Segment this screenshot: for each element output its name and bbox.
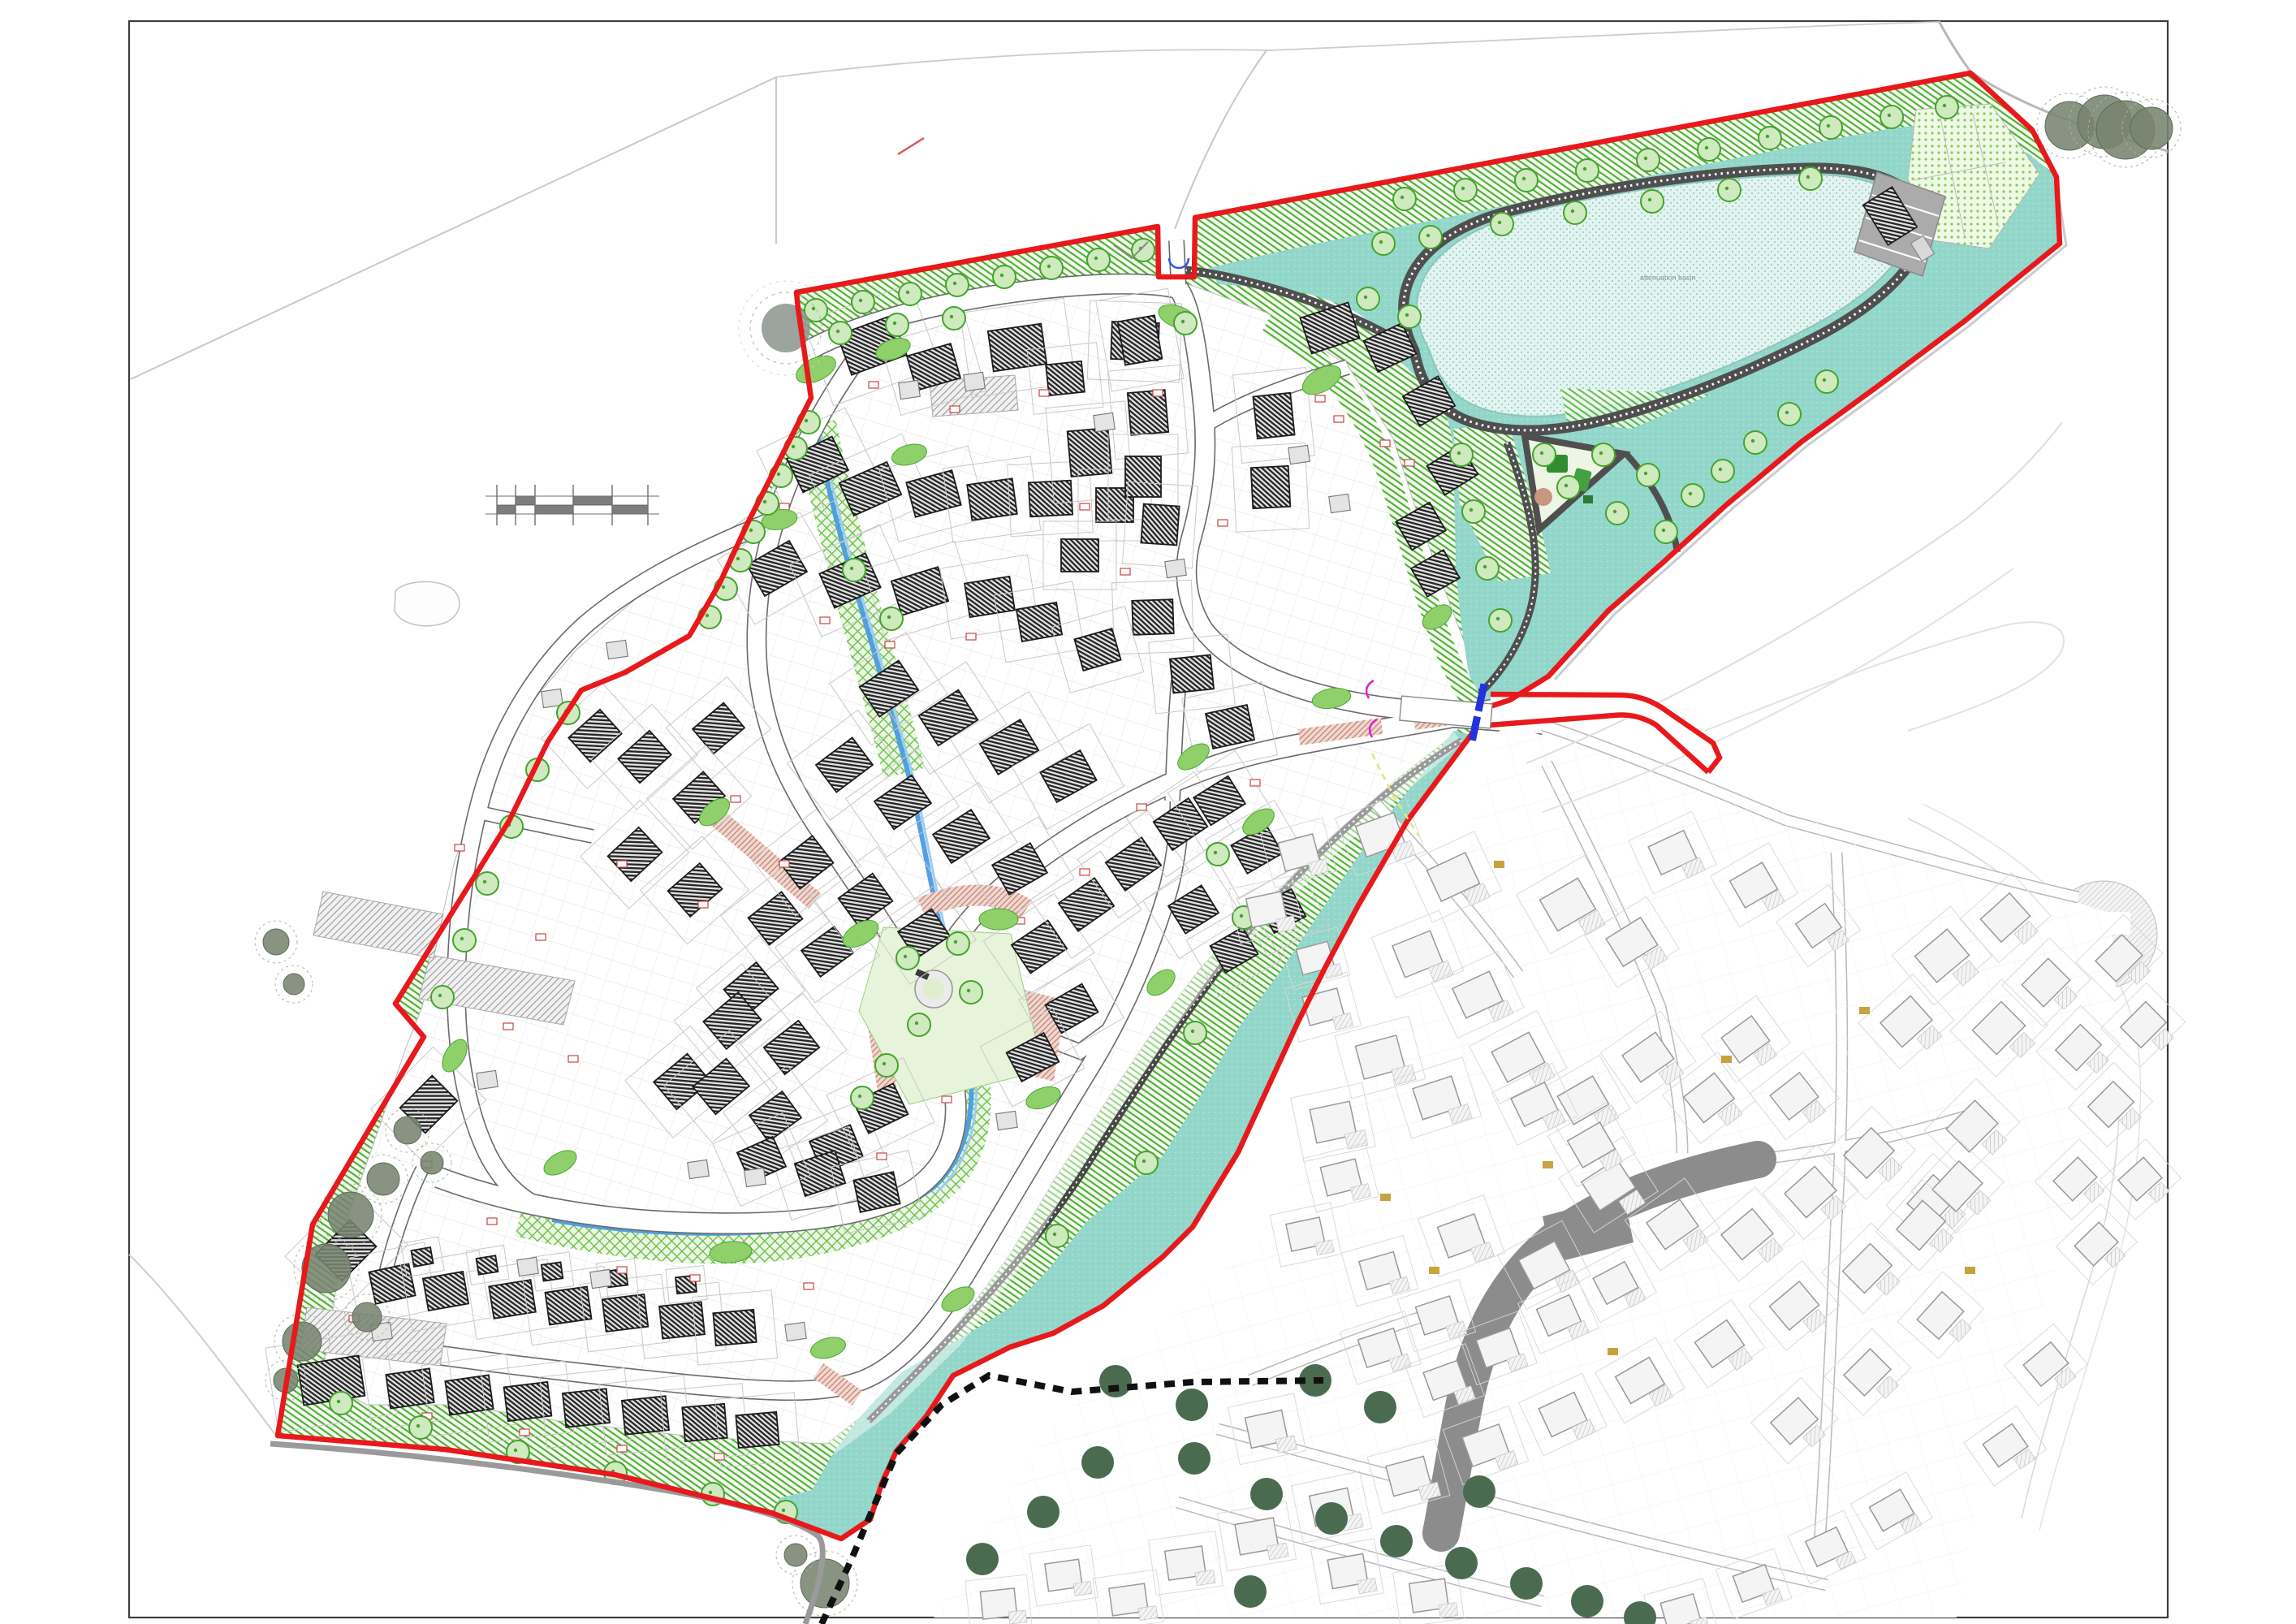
svg-text:attenuation basin: attenuation basin xyxy=(1640,274,1696,282)
